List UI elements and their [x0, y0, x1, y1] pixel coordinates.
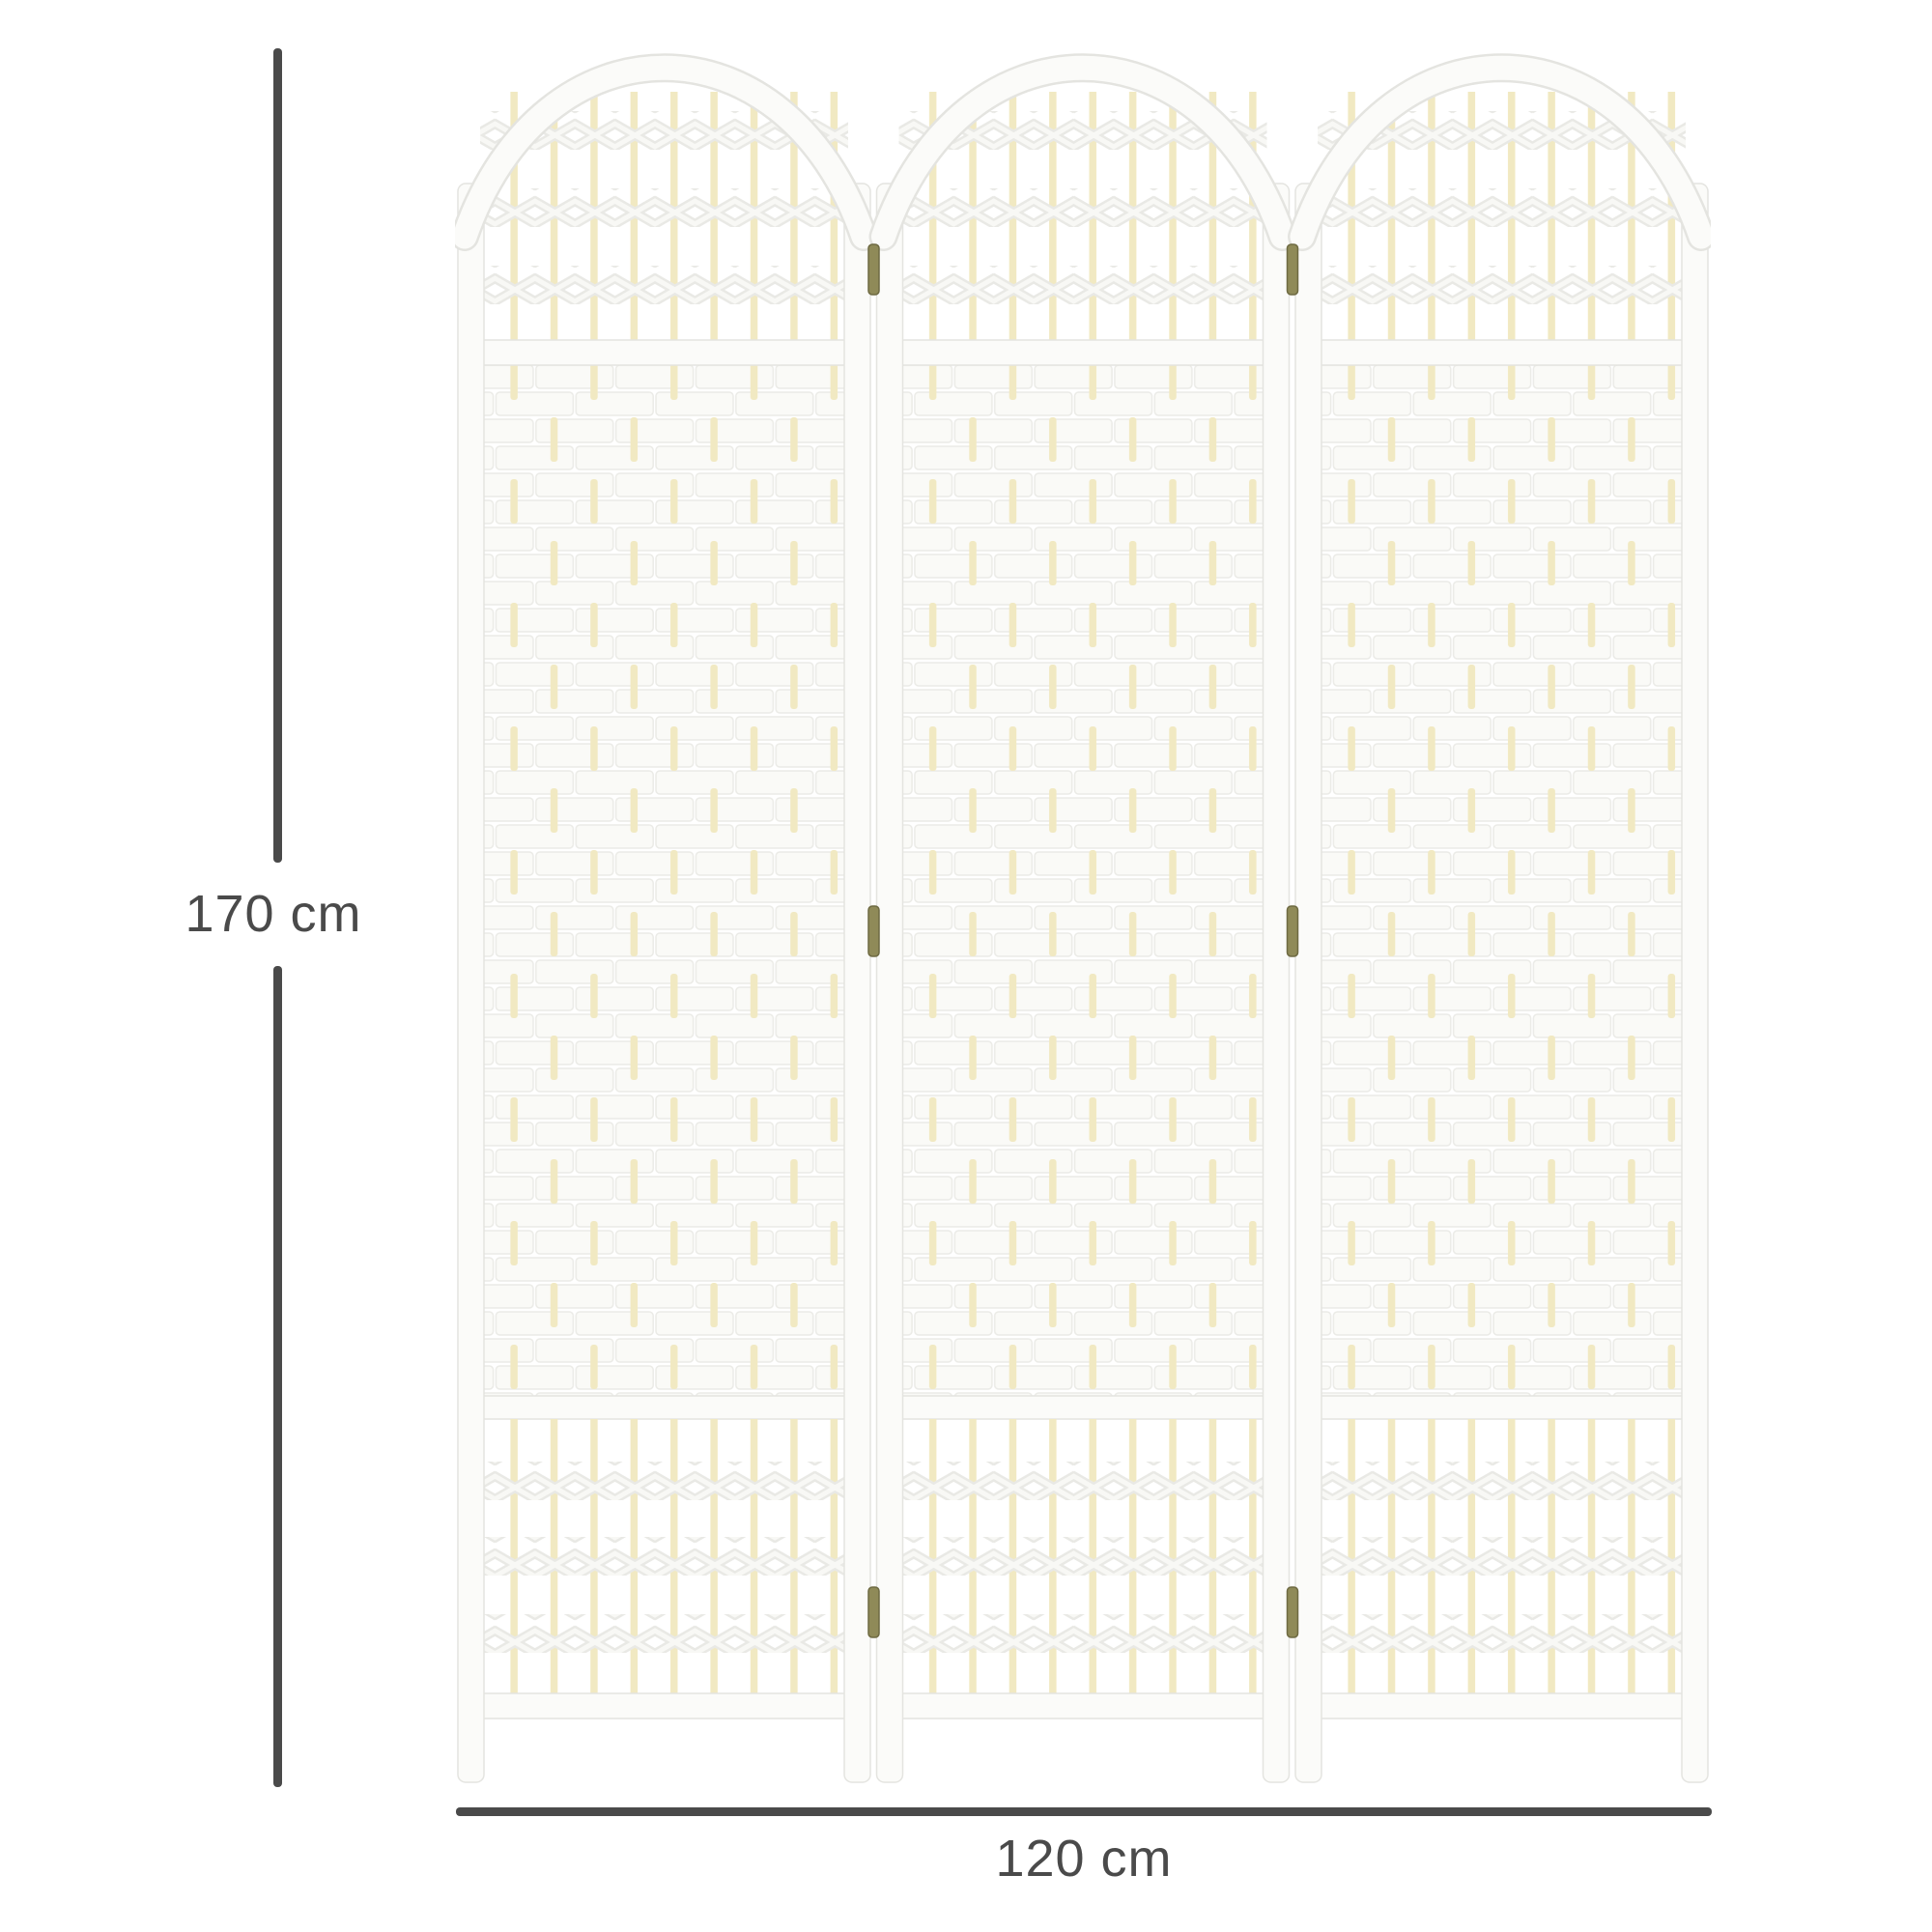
hinge-right-middle: [1288, 906, 1298, 956]
height-dimension-line-lower: [273, 966, 282, 1787]
width-dimension-line: [456, 1807, 1712, 1816]
hinge-right-top: [1288, 244, 1298, 295]
hinge-left-top: [868, 244, 879, 295]
hinge-right-bottom: [1288, 1587, 1298, 1637]
height-dimension-line-upper: [273, 48, 282, 863]
product-dimension-image: 170 cm 120 cm: [0, 0, 1932, 1932]
divider-panel-3: [1295, 68, 1708, 1782]
width-dimension-label: 120 cm: [924, 1830, 1243, 1888]
hinge-left-middle: [868, 906, 879, 956]
divider-panel-2: [877, 68, 1290, 1782]
room-divider-illustration: [455, 39, 1711, 1787]
divider-panel-1: [458, 68, 870, 1782]
hinge-left-bottom: [868, 1587, 879, 1637]
height-dimension-label: 170 cm: [114, 885, 433, 943]
